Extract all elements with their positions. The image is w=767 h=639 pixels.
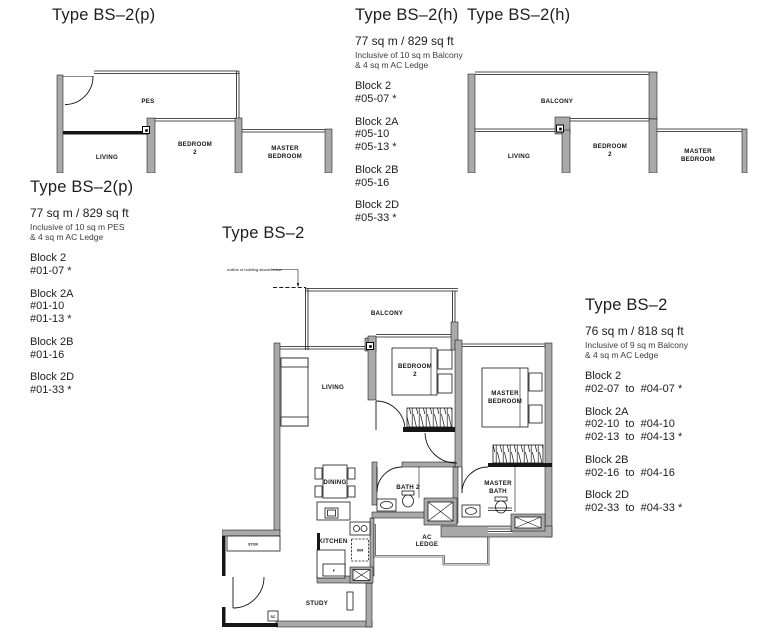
entrance-door-arc (233, 577, 264, 608)
block-group: Block 2D #01-33 * (30, 371, 180, 397)
label-store: STOR (248, 543, 258, 547)
windows (475, 72, 742, 132)
room-label-master-bedroom-2: BEDROOM (268, 153, 302, 160)
info-area: 77 sq m / 829 sq ft (30, 206, 180, 220)
block-name: Block 2A (30, 288, 180, 301)
info-note: Inclusive of 10 sq m PES (30, 222, 180, 232)
pes-entrance-door-arc (65, 77, 93, 105)
block-group: Block 2D #05-33 * (355, 199, 467, 225)
unit-number: #01-07 * (30, 265, 180, 278)
info-block-bs2p: Type BS–2(p) 77 sq m / 829 sq ft Inclusi… (30, 178, 180, 397)
room-label-study: STUDY (306, 600, 329, 607)
block-name: Block 2B (355, 164, 467, 177)
room-label-bedroom2: BEDROOM (178, 141, 212, 148)
unit-number: #02-13 to #04-13 * (585, 431, 755, 444)
block-name: Block 2B (30, 336, 180, 349)
windows (63, 71, 325, 132)
block-group: Block 2D #02-33 to #04-33 * (585, 489, 755, 515)
info-note: & 4 sq m AC Ledge (355, 60, 467, 70)
plan-p-title: Type BS–2(p) (52, 6, 155, 25)
info-title: Type BS–2(p) (30, 178, 180, 197)
room-label-balcony: BALCONY (541, 98, 574, 105)
plan-main-title: Type BS–2 (222, 224, 305, 243)
ac-unit-symbol-masterbath (511, 514, 545, 531)
room-label-living: LIVING (508, 153, 530, 160)
room-label-bedroom2: BEDROOM (398, 363, 432, 370)
room-label-bedroom2: BEDROOM (593, 143, 627, 150)
unit-number: #05-10 (355, 128, 467, 141)
room-label-pes: PES (141, 98, 154, 105)
info-note: Inclusive of 10 sq m Balcony (355, 50, 467, 60)
block-group: Block 2B #02-16 to #04-16 (585, 454, 755, 480)
sofa (281, 358, 308, 426)
building-outline-annotation: outline of building above/below (227, 267, 306, 288)
floorplan-page: Type BS–2(p) Type BS–2(h) Type BS–2 PE (0, 0, 767, 639)
block-group: Block 2 #01-07 * (30, 252, 180, 278)
block-name: Block 2A (585, 406, 755, 419)
info-block-bs2: Type BS–2 76 sq m / 818 sq ft Inclusive … (585, 296, 755, 515)
info-area: 77 sq m / 829 sq ft (355, 34, 467, 48)
floor-plan-bs2p: PES LIVING BEDROOM 2 MASTER BEDROOM (53, 68, 335, 173)
room-label-bedroom2-num: 2 (193, 149, 197, 156)
ac-unit-symbol-shaft (424, 498, 457, 525)
unit-number: #02-16 to #04-16 (585, 467, 755, 480)
label-washer: WM (357, 549, 363, 553)
unit-number: #02-10 to #04-10 (585, 418, 755, 431)
bed-bedroom2 (392, 348, 452, 395)
unit-number: #02-33 to #04-33 * (585, 502, 755, 515)
room-label-living: LIVING (322, 384, 344, 391)
room-label-master-bedroom: MASTER (271, 145, 299, 152)
room-label-living: LIVING (96, 154, 118, 161)
room-label-master-bedroom-2: BEDROOM (488, 398, 522, 405)
unit-number: #05-07 * (355, 93, 467, 106)
unit-number: #01-10 (30, 300, 180, 313)
unit-number: #01-33 * (30, 384, 180, 397)
room-label-bath2: BATH 2 (396, 484, 420, 491)
room-label-master-bath-2: BATH (489, 488, 507, 495)
info-block-bs2h: Type BS–2(h) 77 sq m / 829 sq ft Inclusi… (355, 6, 467, 225)
block-group: Block 2A #05-10 #05-13 * (355, 116, 467, 154)
unit-number: #05-13 * (355, 141, 467, 154)
floor-plan-bs2h: BALCONY LIVING BEDROOM 2 MASTER BEDROOM (465, 68, 750, 173)
block-group: Block 2 #02-07 to #04-07 * (585, 370, 755, 396)
block-group: Block 2A #01-10 #01-13 * (30, 288, 180, 326)
unit-number: #01-13 * (30, 313, 180, 326)
block-name: Block 2D (30, 371, 180, 384)
info-area: 76 sq m / 818 sq ft (585, 324, 755, 338)
info-title: Type BS–2(h) (355, 6, 467, 25)
block-name: Block 2 (30, 252, 180, 265)
block-group: Block 2 #05-07 * (355, 80, 467, 106)
bedroom2-door-arc (376, 401, 405, 430)
wardrobe-master (493, 445, 543, 463)
room-label-bedroom2-num: 2 (608, 151, 612, 158)
block-name: Block 2D (355, 199, 467, 212)
room-label-master-bedroom-2: BEDROOM (681, 156, 715, 163)
block-name: Block 2B (585, 454, 755, 467)
room-label-ac-ledge: AC (422, 534, 432, 541)
info-note: & 4 sq m AC Ledge (30, 232, 180, 242)
block-group: Block 2A #02-10 to #04-10 #02-13 to #04-… (585, 406, 755, 444)
unit-number: #01-16 (30, 349, 180, 362)
block-group: Block 2B #01-16 (30, 336, 180, 362)
column-marker (143, 127, 150, 134)
ac-unit-symbol-kitchen (350, 567, 373, 583)
block-name: Block 2A (355, 116, 467, 129)
label-shoe-cabinet: SC (271, 615, 276, 619)
column-marker (367, 343, 374, 350)
wardrobe-bedroom2 (407, 408, 452, 427)
info-note: Inclusive of 9 sq m Balcony (585, 340, 755, 350)
room-label-master-bath: MASTER (484, 480, 512, 487)
plan-h-title: Type BS–2(h) (467, 6, 570, 25)
room-label-master-bedroom: MASTER (491, 390, 519, 397)
room-label-kitchen: KITCHEN (318, 538, 348, 545)
info-title: Type BS–2 (585, 296, 755, 315)
room-label-bedroom2-num: 2 (413, 371, 417, 378)
hall-door-arc (425, 433, 457, 463)
hob (350, 522, 370, 535)
block-name: Block 2 (355, 80, 467, 93)
room-label-balcony: BALCONY (371, 310, 404, 317)
unit-number: #05-33 * (355, 212, 467, 225)
block-name: Block 2D (585, 489, 755, 502)
info-note: & 4 sq m AC Ledge (585, 350, 755, 360)
block-name: Block 2 (585, 370, 755, 383)
room-label-dining: DINING (323, 479, 346, 486)
room-label-master-bedroom: MASTER (684, 148, 712, 155)
room-label-ac-ledge-2: LEDGE (416, 541, 439, 548)
floor-plan-bs2-main: outline of building above/below (222, 262, 580, 632)
block-group: Block 2B #05-16 (355, 164, 467, 190)
column-marker (557, 125, 564, 132)
unit-number: #05-16 (355, 177, 467, 190)
study-door-panel (347, 592, 353, 610)
unit-number: #02-07 to #04-07 * (585, 383, 755, 396)
